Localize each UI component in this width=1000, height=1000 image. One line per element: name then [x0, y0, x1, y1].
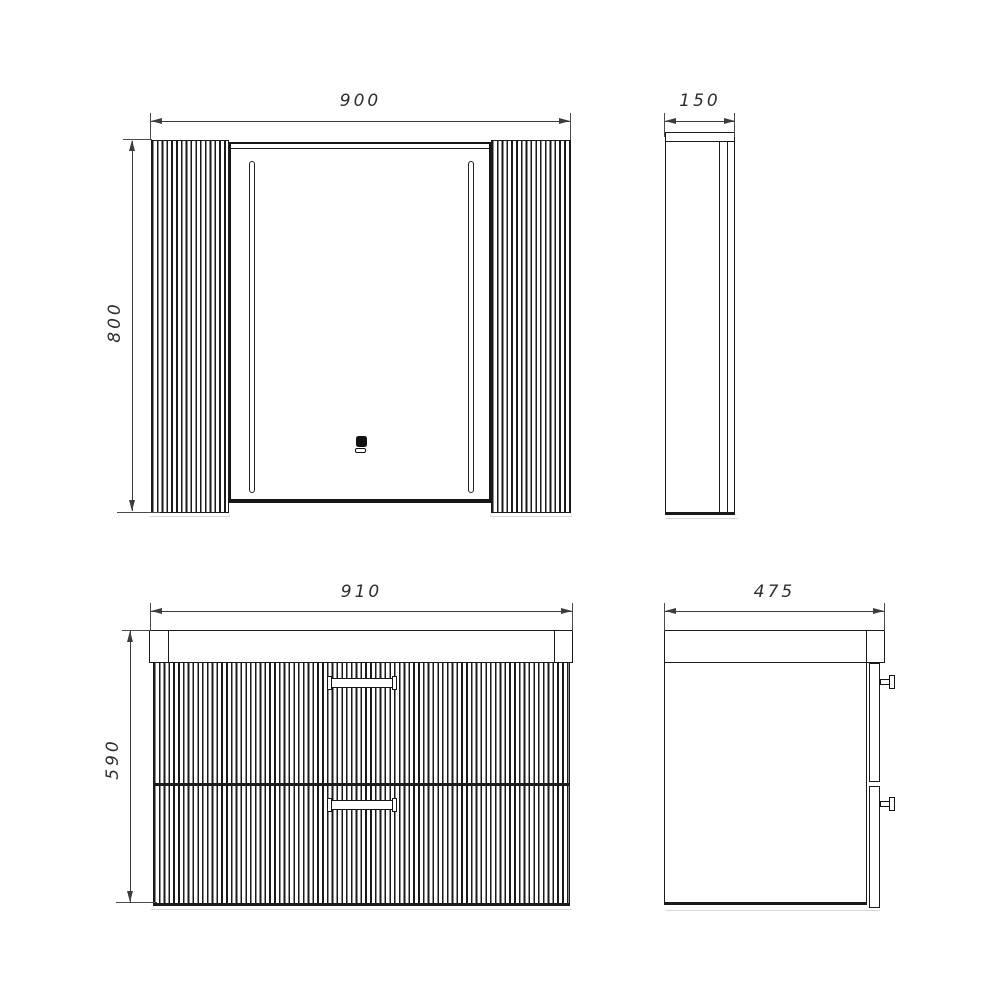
drawer-handle-bottom — [328, 800, 396, 810]
extension-line — [570, 113, 571, 140]
led-strip-right — [468, 161, 474, 493]
countertop-edge-line-right — [554, 631, 555, 662]
led-strip-left — [249, 161, 255, 493]
mirror-side-mirror-layer-line — [727, 142, 728, 513]
mirror-side-door-line — [719, 142, 720, 513]
handle-end-cap — [392, 676, 397, 690]
touch-sensor-body — [356, 436, 367, 447]
arrowhead-down-icon — [129, 500, 135, 511]
mirror-right-fluted-panel — [491, 140, 571, 513]
extension-line — [572, 603, 573, 631]
arrowhead-right-icon — [561, 608, 572, 614]
arrowhead-right-icon — [873, 608, 884, 614]
handle-end-cap — [889, 675, 895, 689]
vanity-countertop — [149, 630, 573, 663]
shadow-line — [151, 909, 572, 910]
countertop-edge-line-left — [168, 631, 169, 662]
dimension-label-vanity-height: 590 — [104, 729, 122, 789]
dimension-line — [151, 121, 570, 122]
extension-line — [884, 603, 885, 631]
handle-end-cap — [327, 676, 332, 690]
shadow-line — [666, 910, 880, 911]
drawer-divider-line — [153, 783, 570, 786]
dimension-line — [665, 611, 884, 612]
mirror-side-top-panel-line — [666, 141, 734, 142]
arrowhead-left-icon — [665, 118, 676, 124]
shadow-line — [150, 516, 230, 517]
drawer-handle-top — [328, 678, 396, 688]
mirror-left-fluted-panel — [151, 140, 229, 513]
extension-line — [734, 113, 735, 137]
drawer-front-profile-top — [869, 663, 880, 782]
arrowhead-left-icon — [665, 608, 676, 614]
extension-line — [664, 113, 665, 137]
mirror-side-body — [665, 132, 735, 515]
arrowhead-down-icon — [127, 891, 133, 902]
arrowhead-up-icon — [127, 631, 133, 642]
shadow-line — [666, 518, 738, 519]
mirror-frame-inner-top-line — [231, 148, 489, 149]
arrowhead-left-icon — [151, 608, 162, 614]
dimension-label-mirror-width: 900 — [151, 92, 570, 110]
dimension-line — [132, 141, 133, 511]
arrowhead-up-icon — [129, 140, 135, 151]
vanity-side-countertop — [664, 630, 885, 663]
arrowhead-right-icon — [559, 118, 570, 124]
arrowhead-left-icon — [151, 118, 162, 124]
drawer-front-profile-bottom — [869, 786, 880, 908]
shadow-line — [490, 516, 572, 517]
handle-end-cap — [327, 798, 332, 812]
extension-line — [123, 139, 152, 140]
handle-end-cap — [392, 798, 397, 812]
countertop-front-edge-line — [866, 631, 867, 662]
arrowhead-right-icon — [724, 118, 735, 124]
extension-line — [117, 512, 160, 513]
extension-line — [116, 902, 157, 903]
dimension-label-mirror-depth: 150 — [650, 92, 750, 110]
technical-drawing-canvas: 900 800 150 — [0, 0, 1000, 1000]
handle-end-cap — [889, 797, 895, 811]
dimension-label-vanity-depth: 475 — [665, 583, 884, 601]
dimension-label-mirror-height: 800 — [106, 292, 124, 352]
dimension-line — [130, 631, 131, 903]
vanity-side-body — [664, 663, 867, 905]
dimension-label-vanity-width: 910 — [151, 583, 572, 601]
dimension-line — [151, 611, 572, 612]
touch-sensor-slot — [355, 448, 366, 453]
